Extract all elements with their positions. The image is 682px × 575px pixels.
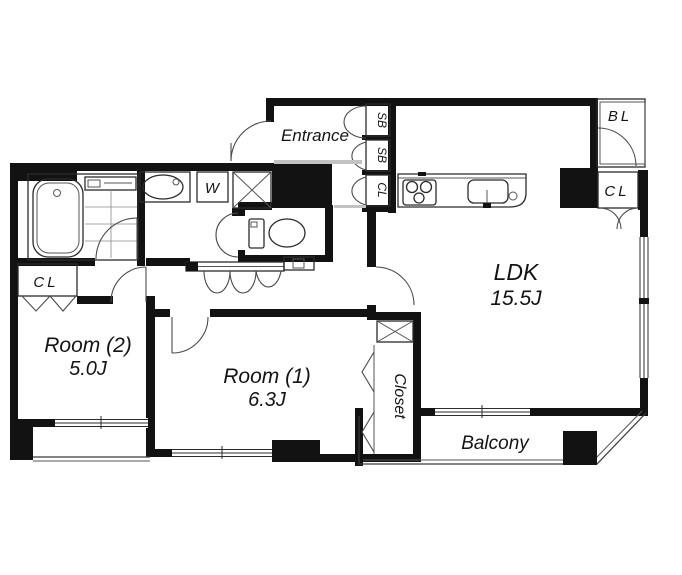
toilet-icon (249, 219, 305, 248)
entrance-label: Entrance (281, 126, 349, 145)
room1-label: Room (1) (223, 365, 311, 388)
room2-bottom-window (55, 416, 148, 429)
ldk-right-window-lower (639, 304, 649, 378)
hall-storage-bottom-label: CL (375, 182, 389, 197)
toilet-door (216, 213, 238, 257)
bathroom (28, 174, 138, 260)
ldk-bottom-window (435, 405, 530, 418)
bathtub-icon (33, 179, 83, 257)
sink-icon (468, 180, 517, 208)
floor-plan-canvas: Entrance LDK 15.5J Room (1) 6.3J Room (2… (0, 0, 682, 575)
room1-size-label: 6.3J (248, 389, 287, 411)
upper-balcony-label: BL (608, 108, 632, 125)
washing-machine-label: W (205, 180, 221, 197)
ldk-closet-box (598, 172, 638, 229)
bath-counter (85, 177, 136, 190)
room2-door (111, 267, 146, 302)
hall-storage-top-label: SB (375, 112, 389, 128)
washroom-sliding-door (186, 262, 284, 293)
balcony-label: Balcony (461, 433, 530, 454)
room2-closet-label: CL (33, 274, 58, 291)
room1-bottom-window (172, 446, 272, 459)
room1-door (172, 317, 208, 353)
left-balcony-strip (33, 457, 150, 461)
ldk-door (376, 267, 414, 305)
ldk-closet-label: CL (604, 183, 629, 200)
washbasin-icon (140, 172, 190, 202)
bath-tiles (85, 190, 137, 258)
room2-size-label: 5.0J (69, 358, 108, 380)
balcony-pillar (563, 431, 597, 465)
ldk-right-window-upper (639, 237, 649, 298)
stove-icon (403, 172, 436, 205)
hall-storage-mid-label: SB (375, 147, 389, 163)
ldk-label: LDK (494, 259, 540, 285)
walls (10, 98, 649, 466)
room2-label: Room (2) (44, 334, 132, 357)
ldk-size-label: 15.5J (490, 287, 542, 310)
floor-plan: Entrance LDK 15.5J Room (1) 6.3J Room (2… (0, 0, 682, 575)
kitchen (398, 172, 526, 208)
room-labels: Entrance LDK 15.5J Room (1) 6.3J Room (2… (33, 108, 632, 454)
windows (55, 237, 649, 459)
entrance-door (231, 121, 271, 161)
closet-label: Closet (391, 373, 408, 419)
